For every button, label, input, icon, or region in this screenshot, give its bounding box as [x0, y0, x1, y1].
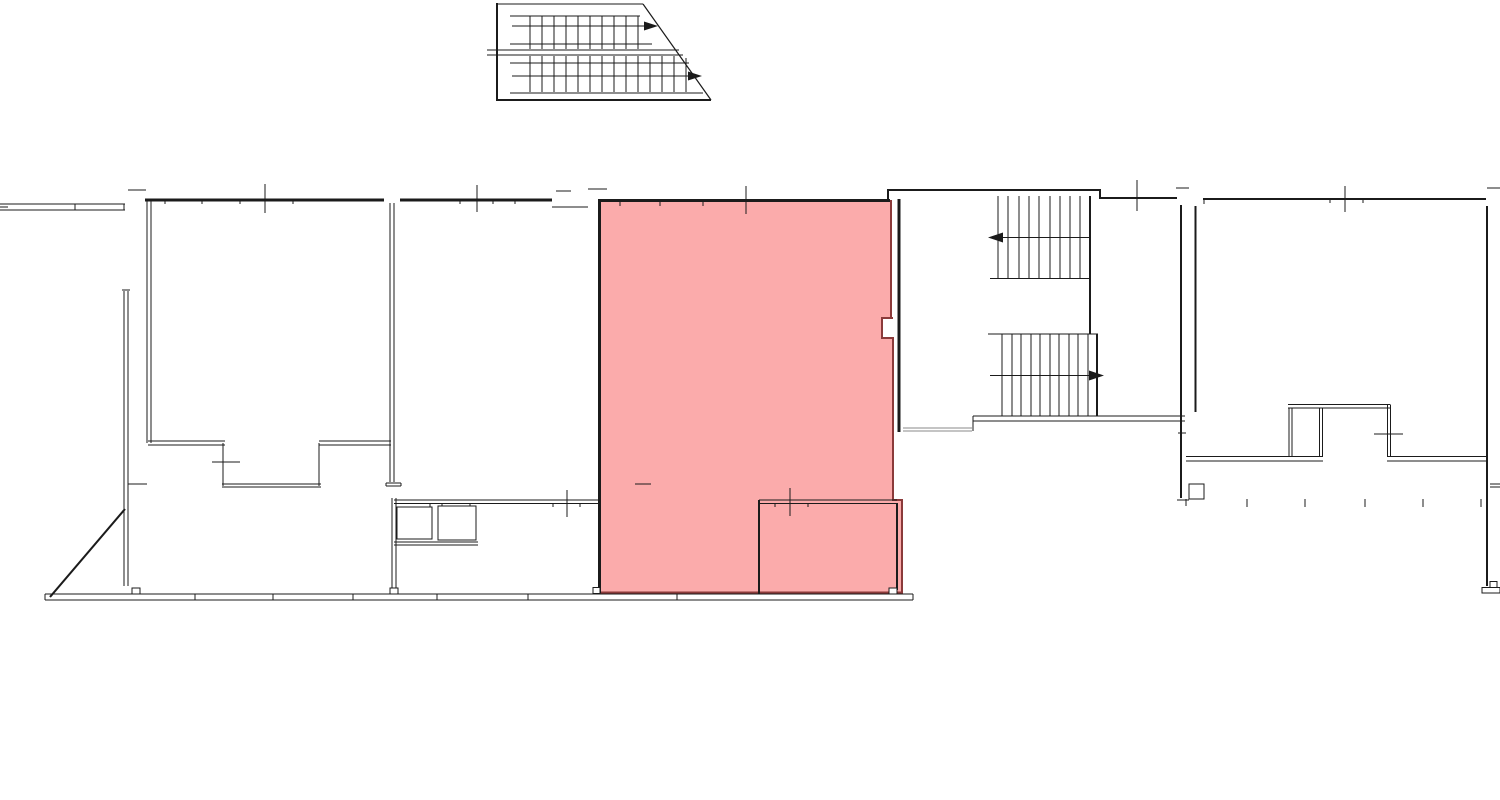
stair-section-detail: [487, 3, 711, 101]
niche: [1288, 405, 1390, 409]
top-wall-centre: [400, 185, 607, 212]
diagonal-brace: [50, 509, 125, 597]
room-right: [1186, 186, 1500, 593]
highlighted-room-fill[interactable]: [599, 201, 902, 593]
column-box: [1189, 484, 1204, 499]
floor-plan-drawing: [0, 0, 1500, 800]
column-box: [390, 588, 398, 594]
stair-treads-lower: [530, 56, 686, 92]
direction-arrow-left-icon: [988, 233, 1003, 243]
stairwell: [888, 180, 1196, 500]
wall-stub-right: [1490, 484, 1500, 487]
floor-plan-canvas: [0, 0, 1500, 800]
corridor-closets: [394, 490, 598, 545]
column-box: [889, 588, 897, 594]
column-box: [593, 588, 600, 594]
stairwell-bottom-wall: [973, 416, 1185, 431]
room-upper-left: [145, 184, 391, 487]
direction-arrow-right-icon: [688, 72, 702, 81]
column-box: [1490, 582, 1497, 588]
door-jamb-notch: [882, 318, 893, 338]
closet-box: [397, 507, 432, 539]
column-box: [132, 588, 140, 594]
closet-box: [438, 506, 476, 540]
window-sill: [903, 428, 972, 431]
terrace-ticks: [1186, 499, 1481, 507]
wall-base: [1482, 588, 1500, 594]
highlighted-room[interactable]: [599, 201, 902, 593]
stairwell-top-wall: [888, 190, 1177, 200]
left-wing-wall: [0, 190, 146, 210]
left-exterior-wall: [50, 290, 147, 597]
